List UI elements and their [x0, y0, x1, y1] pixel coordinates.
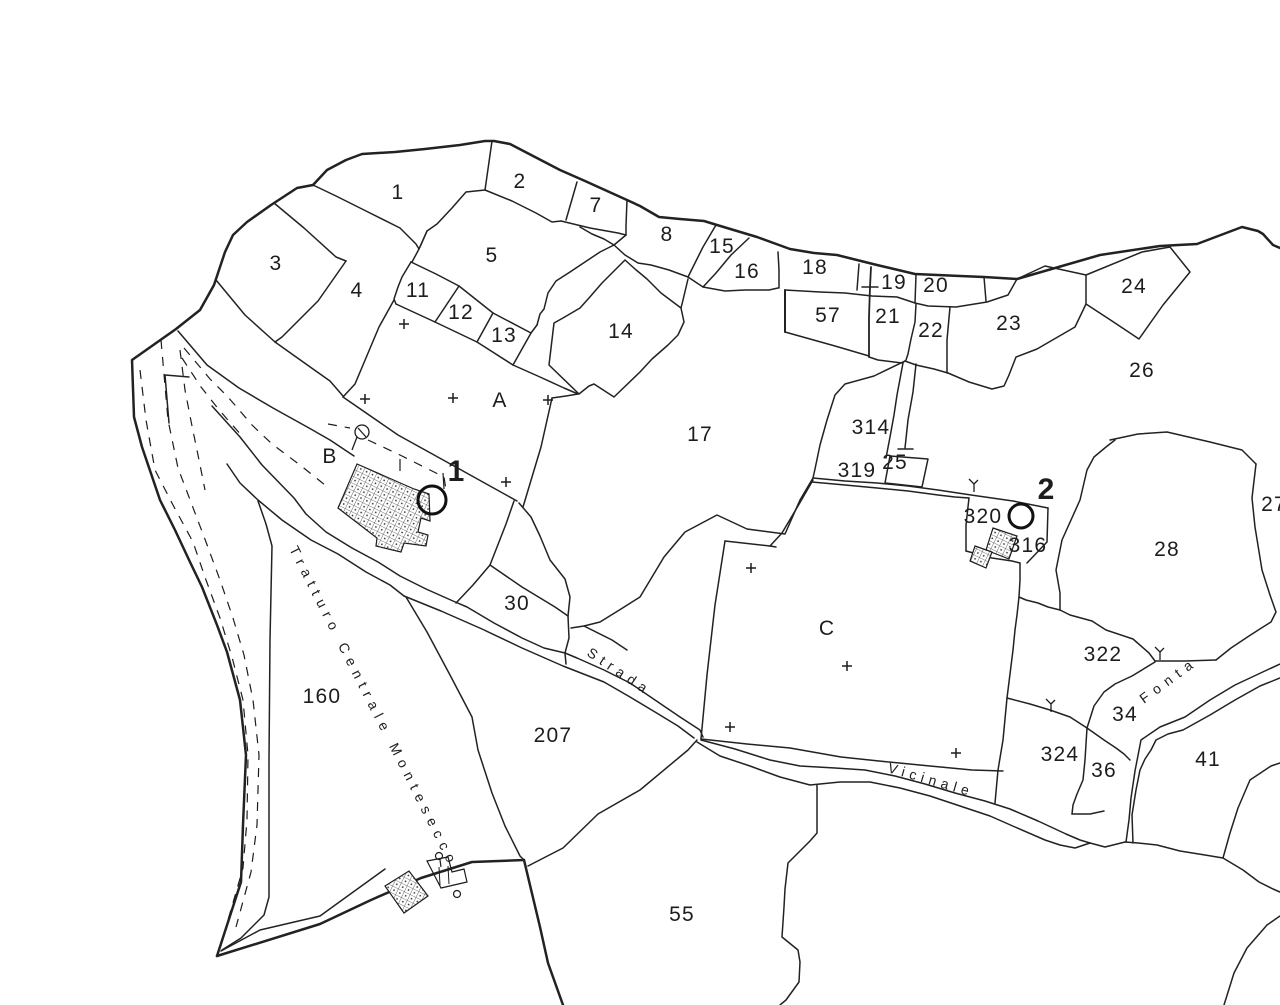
svg-text:160: 160: [303, 685, 342, 708]
svg-text:320: 320: [964, 505, 1003, 528]
svg-text:1: 1: [392, 181, 405, 204]
svg-text:C: C: [819, 617, 835, 640]
svg-text:314: 314: [852, 416, 891, 439]
svg-text:17: 17: [687, 423, 713, 446]
svg-text:18: 18: [802, 256, 828, 279]
svg-text:23: 23: [996, 312, 1022, 335]
svg-text:8: 8: [661, 223, 674, 246]
svg-text:21: 21: [875, 305, 901, 328]
svg-text:26: 26: [1129, 359, 1155, 382]
svg-text:316: 316: [1009, 534, 1048, 557]
svg-text:22: 22: [918, 319, 944, 342]
svg-text:13: 13: [491, 324, 517, 347]
svg-text:324: 324: [1041, 743, 1080, 766]
svg-text:55: 55: [669, 903, 695, 926]
svg-text:36: 36: [1091, 759, 1117, 782]
svg-text:34: 34: [1112, 703, 1138, 726]
svg-text:41: 41: [1195, 748, 1221, 771]
svg-text:1: 1: [448, 455, 465, 488]
svg-text:3: 3: [270, 252, 283, 275]
svg-text:57: 57: [815, 304, 841, 327]
svg-text:27: 27: [1261, 493, 1280, 516]
svg-text:A: A: [492, 389, 507, 412]
svg-text:11: 11: [406, 279, 430, 302]
svg-text:2: 2: [1038, 473, 1055, 506]
svg-text:25: 25: [882, 451, 908, 474]
svg-text:4: 4: [351, 279, 364, 302]
svg-text:5: 5: [486, 244, 499, 267]
svg-text:B: B: [322, 445, 337, 468]
svg-text:319: 319: [838, 459, 877, 482]
svg-text:28: 28: [1154, 538, 1180, 561]
svg-text:2: 2: [514, 170, 527, 193]
svg-text:19: 19: [881, 271, 907, 294]
svg-text:16: 16: [734, 260, 760, 283]
svg-text:20: 20: [923, 274, 949, 297]
svg-text:24: 24: [1121, 275, 1147, 298]
svg-text:15: 15: [709, 235, 735, 258]
svg-text:207: 207: [534, 724, 573, 747]
svg-text:322: 322: [1084, 643, 1123, 666]
svg-text:12: 12: [448, 301, 474, 324]
svg-text:14: 14: [608, 320, 634, 343]
svg-text:30: 30: [504, 592, 530, 615]
svg-text:7: 7: [590, 194, 603, 217]
